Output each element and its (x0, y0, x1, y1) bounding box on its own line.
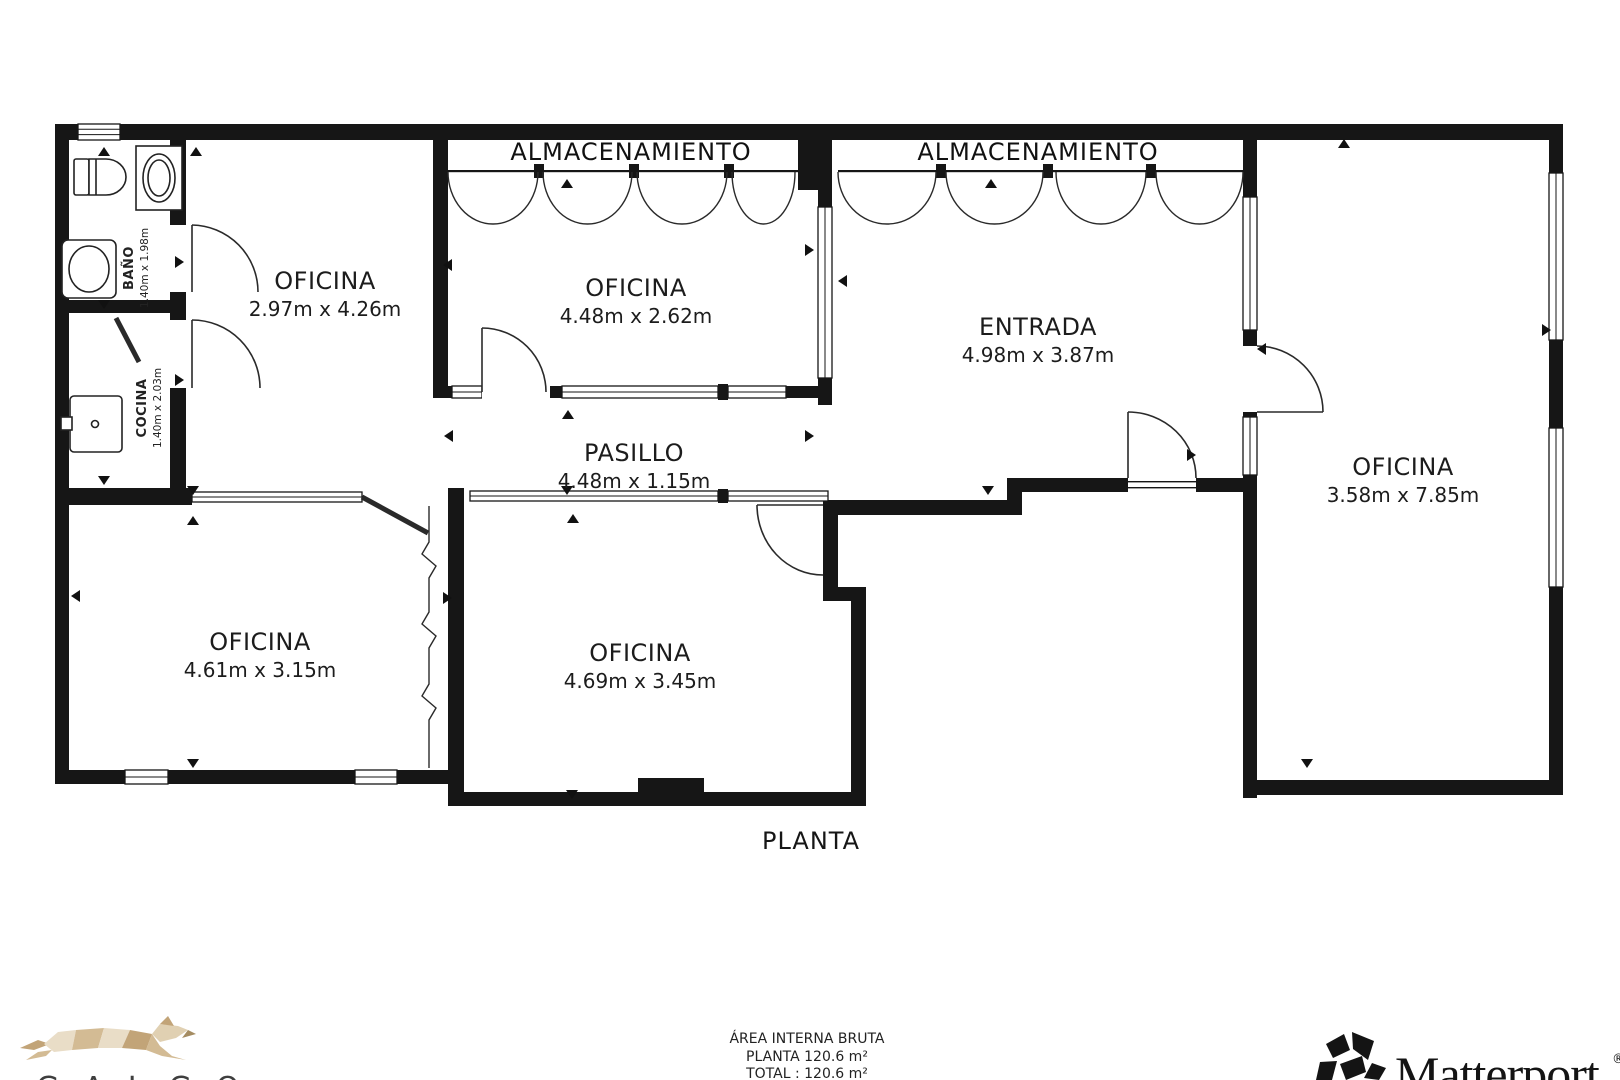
floor-title: PLANTA (762, 826, 860, 856)
room-label-oficina-bottom-mid: OFICINA 4.69m x 3.45m (564, 638, 717, 694)
room-label-entrada: ENTRADA 4.98m x 3.87m (962, 312, 1115, 368)
room-label-pasillo: PASILLO 4.48m x 1.15m (558, 438, 711, 494)
agency-logo-text: GALGO (36, 1071, 263, 1080)
kitchen-door-leaf (116, 318, 139, 362)
storage-label-1: ALMACENAMIENTO (510, 137, 751, 167)
room-label-oficina-top: OFICINA 4.48m x 2.62m (560, 273, 713, 329)
washbasin-icon (62, 240, 116, 298)
room-label-oficina-bottom-left: OFICINA 4.61m x 3.15m (184, 627, 337, 683)
room-label-oficina-left: OFICINA 2.97m x 4.26m (249, 266, 402, 322)
floorplan-page: ALMACENAMIENTO ALMACENAMIENTO OFICINA 2.… (0, 0, 1620, 1080)
registered-trademark-symbol: ® (1612, 1052, 1620, 1067)
galgo-dog-logo (20, 1016, 196, 1060)
matterport-wordmark: Matterport (1395, 1045, 1599, 1080)
room-label-cocina: COCINA 1.40m x 2.03m (135, 368, 165, 448)
folding-partition (422, 506, 436, 768)
area-summary-heading: ÁREA INTERNA BRUTA (729, 1031, 884, 1049)
toilet-icon (74, 159, 126, 195)
bathroom-sink-icon (136, 146, 182, 210)
area-summary-total: TOTAL : 120.6 m² (729, 1066, 884, 1080)
room-label-bano: BAÑO 1.40m x 1.98m (122, 228, 152, 308)
matterport-logo-icon (1316, 1032, 1386, 1080)
storage-label-2: ALMACENAMIENTO (917, 137, 1158, 167)
floorplan-drawing (0, 0, 1620, 1080)
office-door-leaf (362, 497, 428, 533)
area-summary-planta: PLANTA 120.6 m² (729, 1049, 884, 1067)
kitchen-sink-icon (61, 396, 122, 452)
room-label-oficina-right: OFICINA 3.58m x 7.85m (1327, 452, 1480, 508)
area-summary: ÁREA INTERNA BRUTA PLANTA 120.6 m² TOTAL… (729, 1031, 884, 1080)
